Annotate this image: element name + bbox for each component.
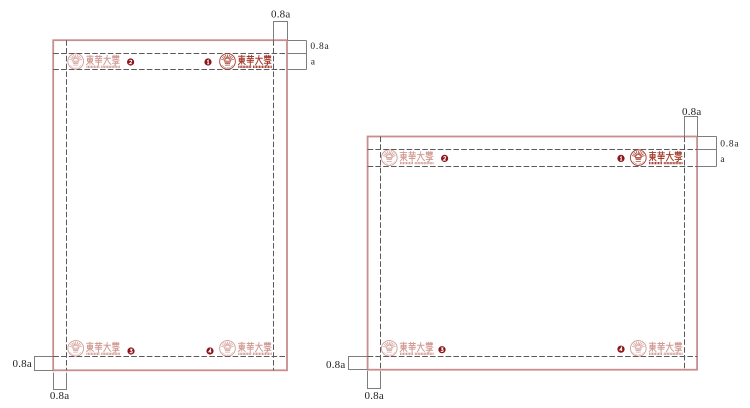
svg-text:0.8a: 0.8a [682, 106, 701, 118]
svg-text:0.8a: 0.8a [326, 359, 345, 371]
svg-text:0.8a: 0.8a [271, 8, 290, 20]
svg-text:a: a [720, 155, 725, 165]
svg-text:0.8a: 0.8a [50, 390, 69, 402]
svg-text:0.8a: 0.8a [13, 358, 32, 370]
svg-text:a: a [311, 57, 316, 67]
svg-text:0.8a: 0.8a [365, 390, 384, 402]
svg-text:0.8a: 0.8a [720, 139, 739, 149]
svg-text:0.8a: 0.8a [310, 42, 329, 52]
